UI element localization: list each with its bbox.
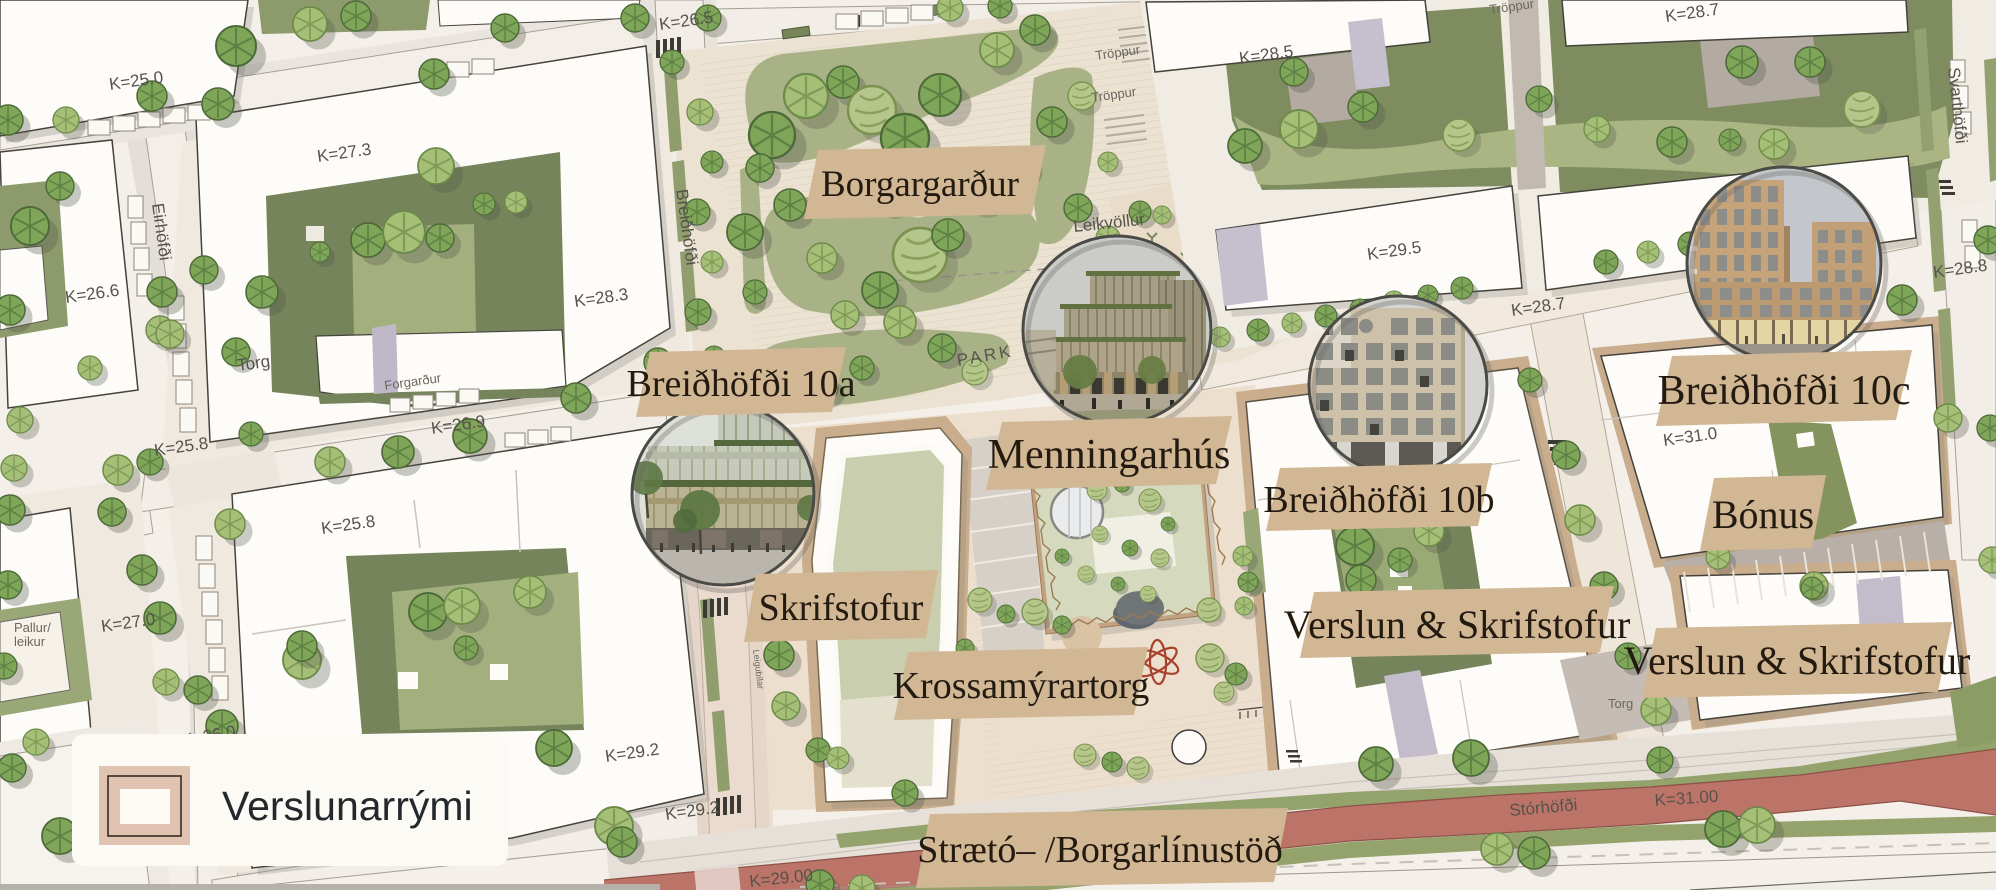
svg-text:Breiðhöfði 10c: Breiðhöfði 10c bbox=[1657, 368, 1910, 414]
svg-text:Torg: Torg bbox=[1608, 696, 1633, 711]
svg-text:Skrifstofur: Skrifstofur bbox=[759, 587, 924, 629]
svg-text:Bónus: Bónus bbox=[1712, 492, 1814, 537]
svg-text:Pallur/: Pallur/ bbox=[14, 620, 51, 635]
svg-text:Strætó– /Borgarlínustöð: Strætó– /Borgarlínustöð bbox=[917, 829, 1283, 871]
svg-text:Breiðhöfði 10b: Breiðhöfði 10b bbox=[1263, 479, 1494, 521]
svg-text:Borgargarður: Borgargarður bbox=[821, 164, 1019, 205]
svg-text:Breiðhöfði 10a: Breiðhöfði 10a bbox=[626, 363, 855, 405]
svg-text:leikur: leikur bbox=[14, 634, 46, 649]
svg-text:Verslun & Skrifstofur: Verslun & Skrifstofur bbox=[1284, 602, 1631, 647]
svg-text:Verslunarrými: Verslunarrými bbox=[222, 783, 473, 829]
svg-text:Krossamýrartorg: Krossamýrartorg bbox=[893, 665, 1150, 707]
svg-text:Verslun & Skrifstofur: Verslun & Skrifstofur bbox=[1624, 638, 1971, 683]
svg-text:Menningarhús: Menningarhús bbox=[988, 432, 1231, 478]
